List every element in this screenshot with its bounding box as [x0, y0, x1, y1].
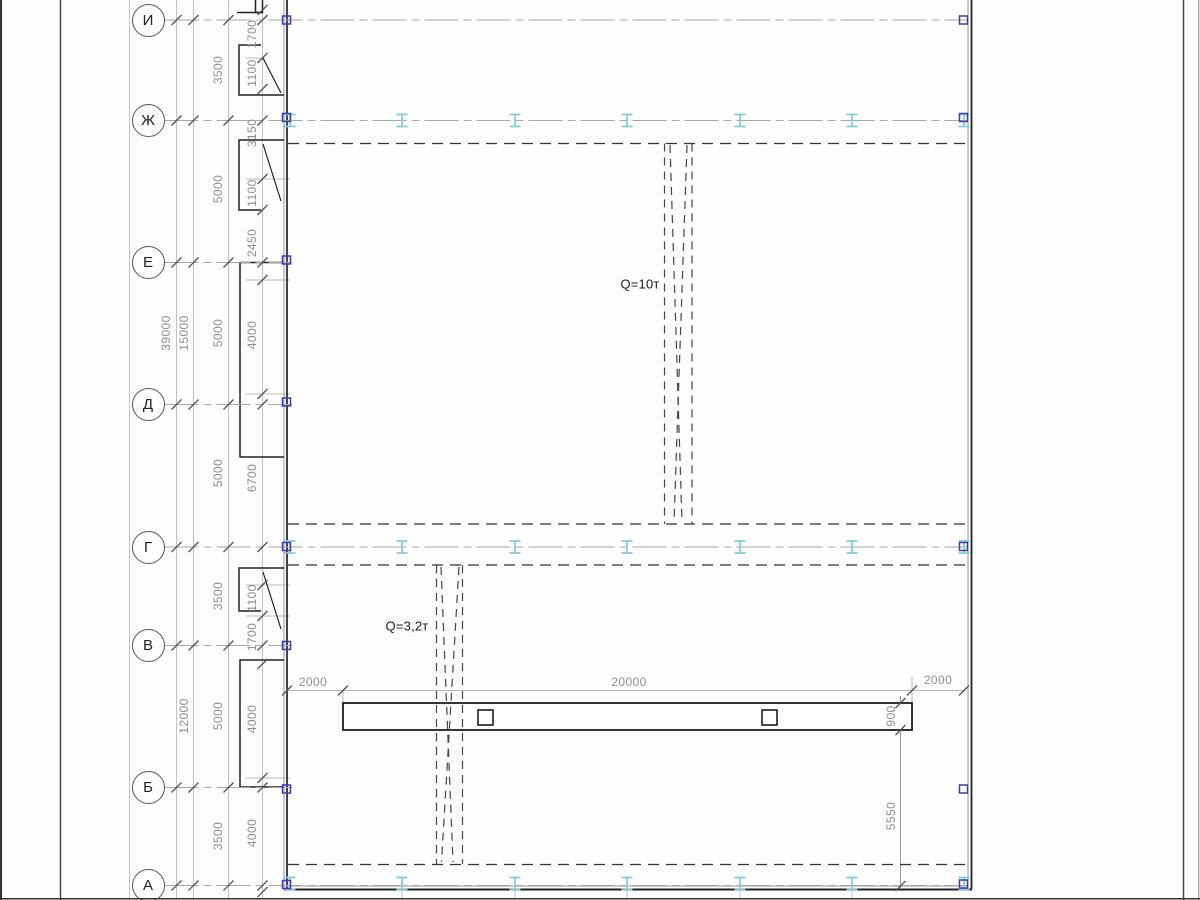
axis-circle-3: Д	[132, 388, 165, 421]
dim-label: 12000	[178, 698, 190, 733]
plan-linework	[0, 0, 1200, 900]
crane-runway-dashed-lines	[288, 144, 968, 865]
walls	[237, 0, 972, 890]
crane-load-label: Q=10т	[620, 278, 659, 291]
dim-label: 1700	[246, 623, 258, 651]
dim-label: 3500	[212, 56, 224, 84]
dim-label: 4000	[246, 819, 258, 847]
axis-letter: В	[143, 637, 153, 654]
axis-letter: Б	[143, 779, 153, 796]
dim-label: 15000	[178, 315, 190, 350]
dim-label: 1100	[246, 179, 258, 206]
dim-label: 3150	[246, 119, 258, 147]
axis-letter: И	[143, 12, 154, 29]
dim-label: 5000	[212, 319, 224, 347]
dim-label: 1700	[246, 20, 258, 48]
dimension-extension-lines	[246, 58, 290, 778]
axis-circle-0: И	[132, 4, 165, 37]
dim-label: 5550	[885, 802, 897, 830]
i-beam-icon	[735, 878, 746, 890]
dim-label: 4000	[246, 705, 258, 733]
dim-label: 4000	[246, 321, 258, 349]
sheet-frame	[0, 0, 1200, 900]
dim-label: 3500	[212, 822, 224, 850]
monorail-beam	[343, 703, 912, 730]
axis-circle-6: Б	[132, 771, 165, 804]
axis-circle-2: Е	[132, 246, 165, 279]
dim-label: 5000	[212, 175, 224, 203]
i-beam-icon	[622, 878, 633, 890]
i-beam-icon	[510, 878, 521, 890]
dim-label: 39000	[160, 315, 172, 350]
node-marker-icon	[960, 785, 968, 793]
i-beam-icon	[847, 878, 858, 890]
dim-label: 2000	[924, 674, 952, 686]
axis-circle-4: Г	[132, 531, 165, 564]
dim-label: 3500	[212, 582, 224, 610]
wall-notches	[239, 45, 284, 787]
dim-label: 900	[885, 705, 897, 726]
axis-letter: Г	[144, 539, 152, 556]
axis-letter: Е	[143, 254, 153, 271]
axis-circle-7: А	[132, 869, 165, 900]
dim-label: 5000	[212, 702, 224, 730]
axis-letter: А	[143, 877, 153, 894]
dim-label: 20000	[611, 676, 646, 688]
dim-label: 1100	[246, 584, 258, 611]
drawing-sheet: ИЖЕДГВБА39000150001200035005000500050003…	[0, 0, 1200, 900]
i-beam-icon	[397, 878, 408, 890]
dim-label: 2450	[246, 229, 258, 257]
crane-load-label: Q=3,2т	[386, 620, 429, 633]
axis-circle-1: Ж	[132, 104, 165, 137]
axis-letter: Д	[143, 396, 153, 413]
axis-letter: Ж	[141, 112, 155, 129]
dim-label: 2000	[299, 676, 327, 688]
dim-label: 5000	[212, 459, 224, 487]
axis-circle-5: В	[132, 629, 165, 662]
dim-label: 6700	[246, 464, 258, 492]
crane-bridge-q10	[665, 144, 693, 525]
dim-label: 1100	[246, 59, 258, 86]
